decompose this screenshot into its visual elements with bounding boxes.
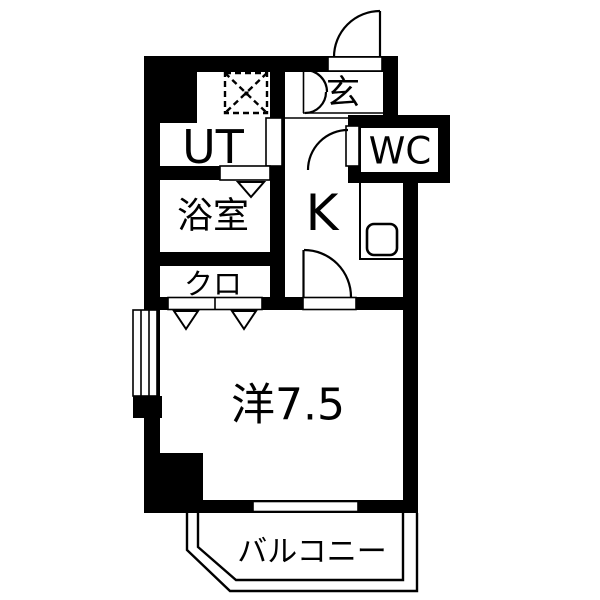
entrance-door-arc [334,11,380,57]
wall-pillar-bottomleft [157,453,203,501]
kitchen-sink-icon [367,224,397,255]
room-labels: 玄 UT WC 浴室 K クロ 洋7.5 バルコニー [177,73,431,570]
genkan-double-door-arc-upper [305,70,327,92]
wall-genkan-right [383,56,398,117]
kitchen-doorway [303,298,356,310]
genkan-label: 玄 [326,73,360,113]
wc-door-leaf [346,126,359,166]
western-room-label: 洋7.5 [231,380,345,431]
entrance-doorway [328,57,382,71]
wall-window-block-left [133,396,162,418]
closet-door-triangle-left-icon [174,311,198,329]
washer-pan-drain [245,92,249,96]
wall-bath-closet [144,252,285,266]
kitchen-door-arc [304,250,351,297]
floor-plan: 玄 UT WC 浴室 K クロ 洋7.5 バルコニー [0,0,600,600]
window-bottom [253,502,358,512]
window-left [133,310,157,396]
wall-ut-kitchen [270,70,285,310]
wc-label: WC [369,130,431,173]
closet-door-triangle-right-icon [232,311,256,329]
doorways [133,57,382,512]
kitchen-label: K [306,184,340,242]
walls [133,56,450,513]
balcony-label: バルコニー [237,535,386,570]
floor-plan-canvas: 玄 UT WC 浴室 K クロ 洋7.5 バルコニー [0,0,600,600]
closet-label: クロ [184,267,242,301]
wc-door-arc [308,130,348,170]
genkan-double-door-arc-lower [305,92,326,113]
bathroom-label: 浴室 [177,196,249,237]
utility-label: UT [182,120,245,174]
wall-right-lower [403,183,418,513]
utility-door [266,118,282,166]
